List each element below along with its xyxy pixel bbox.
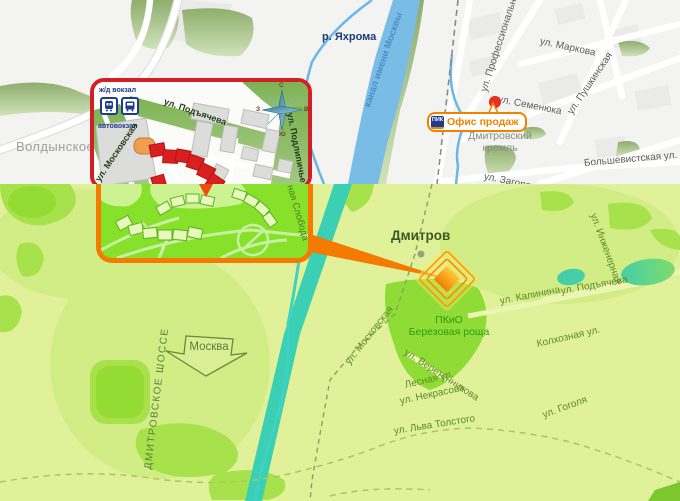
- compass-west: З: [256, 106, 260, 113]
- regional-map: Дмитров ПКиО Березовая роща ДМИТРОВСКОЕ …: [0, 184, 680, 501]
- compass-north: С: [279, 82, 284, 89]
- area-label-kremlin: Дмитровский кремль: [452, 131, 548, 154]
- compass-east: В: [304, 106, 309, 113]
- complex-marker[interactable]: [427, 259, 467, 299]
- sales-office-badge[interactable]: ПИК Офис продаж: [427, 112, 527, 132]
- masterplan-graphics: [101, 184, 308, 258]
- map-screenshot: Волдынское р. Яхрома канал имени Москвы …: [0, 0, 680, 501]
- masterplan-inset: ная Слобода: [96, 184, 313, 263]
- train-station-icon: [100, 97, 118, 115]
- bus-station-icon: [121, 97, 139, 115]
- neighborhood-inset: ж/д вокзал автовокзал ул. Подъячева ул. …: [90, 78, 312, 184]
- park-label-line2: Березовая роща: [406, 326, 492, 338]
- city-map: Волдынское р. Яхрома канал имени Москвы …: [0, 0, 680, 184]
- area-label-voldynskoe: Волдынское: [16, 140, 94, 154]
- park-label-line1: ПКиО: [406, 314, 492, 326]
- sales-office-label: Офис продаж: [447, 116, 519, 128]
- city-label-dmitrov: Дмитров: [391, 229, 450, 244]
- river-label-yakhroma: р. Яхрома: [322, 31, 376, 43]
- pik-logo: ПИК: [431, 116, 444, 129]
- park-label: ПКиО Березовая роща: [406, 314, 492, 338]
- moscow-arrow-label: Москва: [186, 341, 232, 354]
- compass-south: Ю: [279, 131, 286, 138]
- rail-station-label: ж/д вокзал: [99, 87, 136, 95]
